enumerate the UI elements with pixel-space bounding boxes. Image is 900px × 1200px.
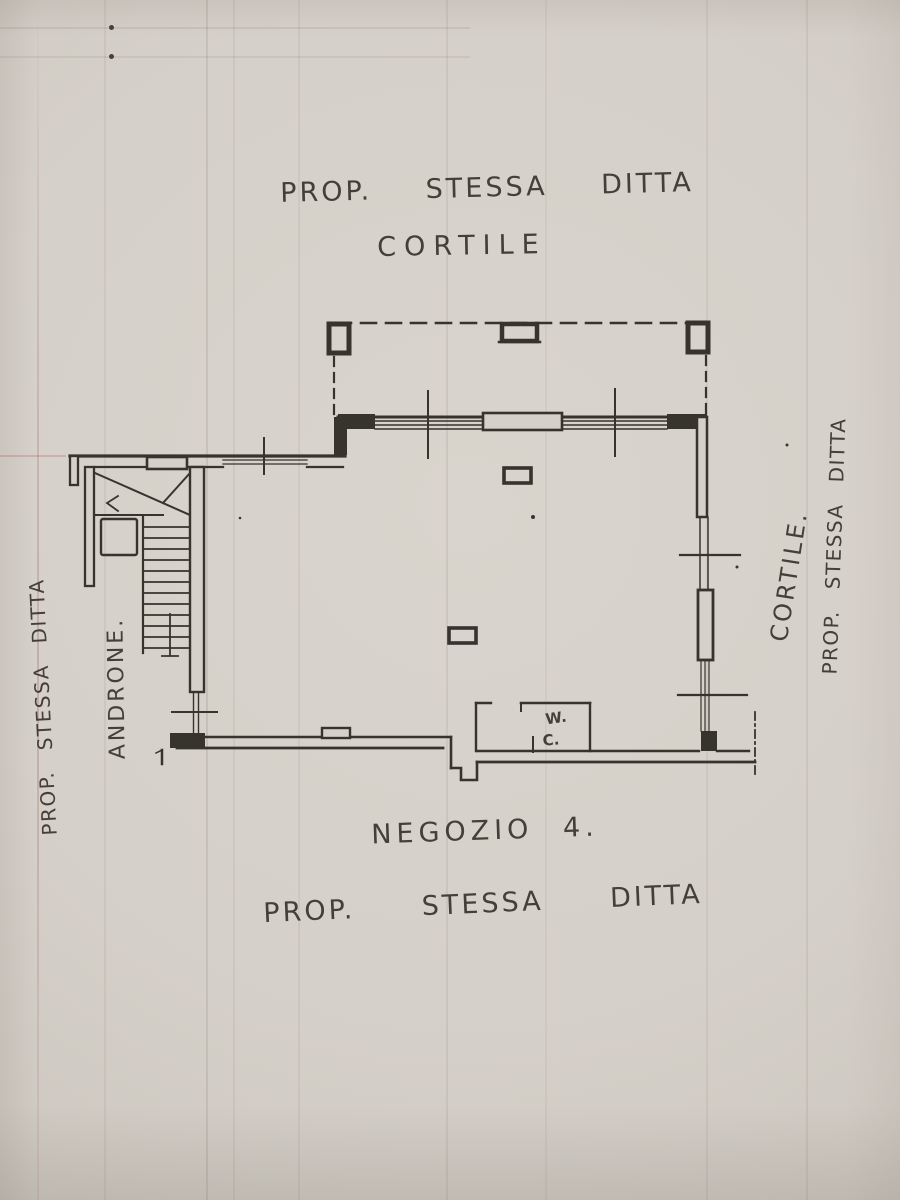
wall-end bbox=[70, 456, 78, 485]
courtyard-boundary bbox=[329, 323, 708, 414]
interior-columns bbox=[449, 468, 531, 643]
winder-steps bbox=[163, 473, 190, 503]
wall-jog bbox=[334, 417, 347, 455]
staircase bbox=[85, 467, 190, 656]
label-wc-bottom: C. bbox=[542, 730, 560, 749]
winder-steps bbox=[95, 473, 190, 515]
courtyard-pillar bbox=[329, 324, 349, 353]
under-stair-closet bbox=[101, 519, 137, 555]
column bbox=[504, 468, 531, 483]
wall-pier bbox=[701, 731, 717, 751]
door-sill bbox=[483, 413, 562, 430]
window bbox=[147, 457, 187, 469]
wc-room bbox=[476, 703, 590, 752]
label-courtyard-top: CORTILE bbox=[377, 229, 547, 263]
courtyard-pillar bbox=[688, 323, 708, 352]
threshold-bump bbox=[322, 728, 350, 738]
wall-pier bbox=[698, 590, 713, 660]
winder-notch bbox=[107, 496, 118, 511]
column bbox=[449, 628, 476, 643]
courtyard-pillar bbox=[502, 324, 537, 341]
entry-step-notch bbox=[451, 762, 477, 780]
right-wall bbox=[678, 417, 755, 777]
label-wc-top: W. bbox=[544, 708, 567, 729]
label-hallway-androne: ANDRONE. bbox=[103, 617, 130, 760]
bottom-wall bbox=[156, 728, 755, 780]
top-wall bbox=[334, 389, 707, 458]
stair-treads bbox=[143, 527, 190, 648]
scanned-floor-plan-page: PROP. STESSA DITTA CORTILE PROP. STESSA … bbox=[0, 0, 900, 1200]
upper-left-wall bbox=[70, 438, 345, 485]
stair-left-wall bbox=[85, 467, 94, 586]
wall-corner bbox=[170, 733, 205, 748]
